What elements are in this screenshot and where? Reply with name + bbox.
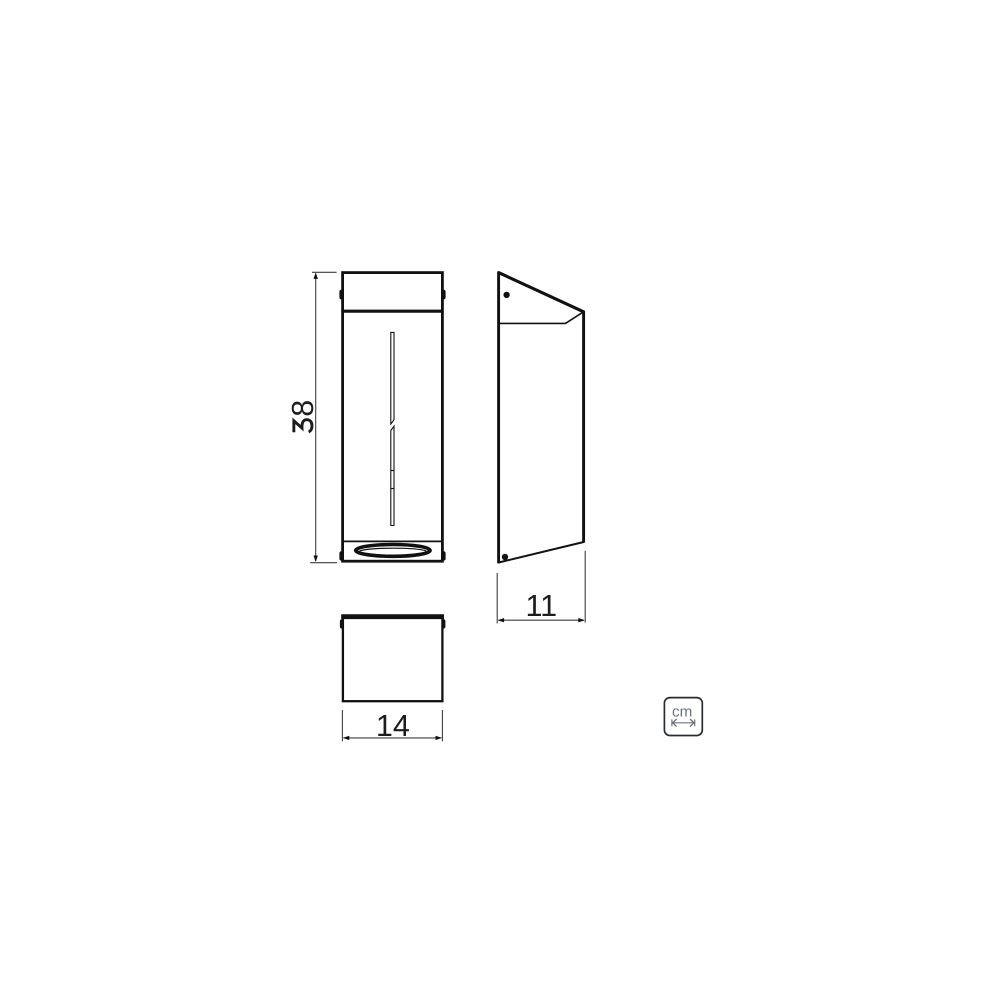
svg-text:11: 11 [525,589,557,623]
svg-text:8: 8 [286,400,320,417]
svg-text:14: 14 [376,709,410,743]
svg-text:cm: cm [672,703,692,720]
